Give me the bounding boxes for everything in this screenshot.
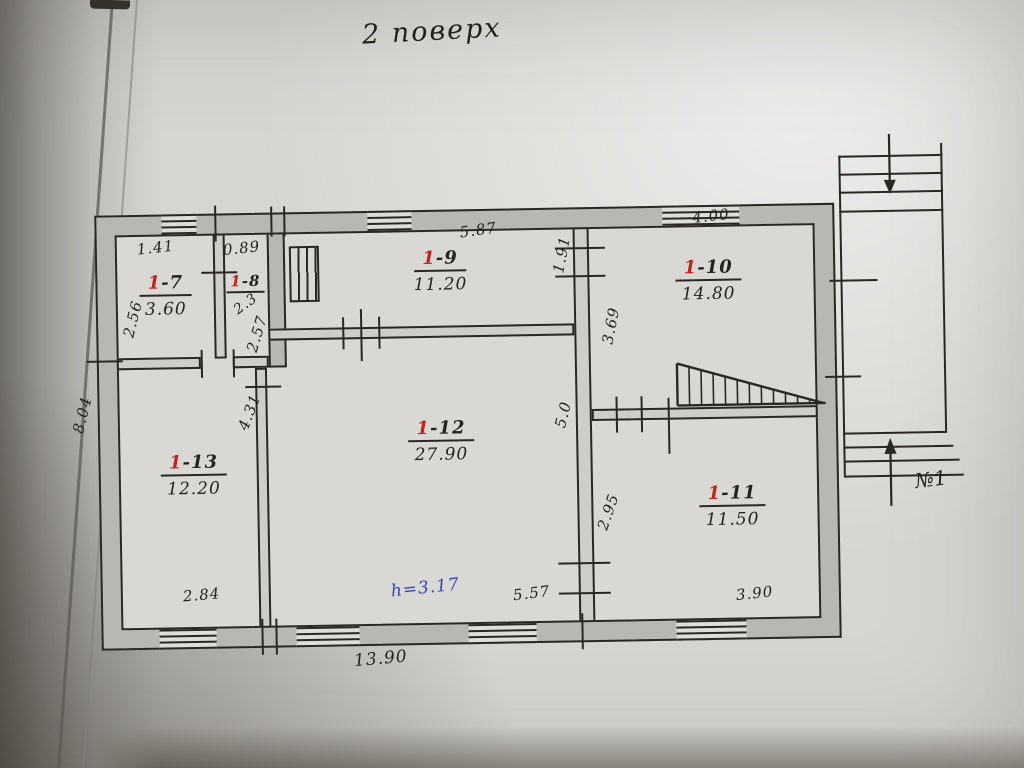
stair-hatch-symbol (675, 357, 828, 412)
stair-down-arrow-icon (879, 134, 904, 196)
dim-outer-left: 8.04 (69, 395, 96, 436)
floor-plan: №1 1-7 3.60 1-8 2.3 1-9 11.20 1-10 14.80… (83, 140, 993, 716)
room-number: 1-7 (139, 272, 191, 297)
external-stair-step (843, 431, 947, 435)
room-number: 1-10 (676, 256, 741, 281)
wall-under-1-8 (233, 356, 269, 369)
room-label-1-8: 1-8 2.3 (209, 270, 282, 312)
external-stair-edge (940, 154, 947, 431)
floor-title: 2 поверх (361, 12, 502, 50)
room-number: 1-11 (699, 482, 764, 507)
window-symbol (367, 210, 411, 231)
room-number: 1-12 (408, 417, 473, 442)
room-label-1-12: 1-12 27.90 (396, 417, 487, 466)
room-area: 27.90 (396, 444, 486, 466)
room-label-1-11: 1-11 11.50 (687, 482, 778, 531)
window-symbol (159, 629, 216, 650)
stair-up-arrow-icon (880, 436, 905, 508)
window-symbol (676, 619, 746, 640)
tick-mark (270, 207, 273, 237)
photo-of-floor-plan: 2 поверх (0, 0, 1024, 768)
room-number: 1-13 (161, 451, 226, 476)
dim-bottom-room13: 2.84 (182, 584, 221, 605)
interior-stair-symbol (289, 246, 320, 303)
room-area: 14.80 (664, 283, 754, 305)
tick-mark (283, 206, 286, 236)
room-label-1-9: 1-9 11.20 (395, 247, 486, 296)
external-stair-edge (838, 156, 846, 476)
tick-mark (829, 279, 877, 282)
page-corner-shadow (90, 0, 130, 10)
window-symbol (468, 623, 536, 644)
room-number: 1-9 (414, 247, 466, 272)
dim-outer-bottom: 13.90 (353, 646, 408, 671)
room-label-1-10: 1-10 14.80 (663, 256, 754, 305)
tick-mark (214, 206, 217, 242)
wall-under-1-7 (117, 357, 201, 370)
room-area: 12.20 (149, 478, 239, 500)
room-area: 11.20 (395, 274, 485, 296)
external-stair-step (839, 209, 943, 213)
window-symbol (296, 626, 359, 647)
room-area: 11.50 (687, 509, 777, 531)
stair-number-label: №1 (914, 465, 948, 493)
window-symbol (161, 214, 196, 235)
room-label-1-13: 1-13 12.20 (148, 451, 239, 500)
